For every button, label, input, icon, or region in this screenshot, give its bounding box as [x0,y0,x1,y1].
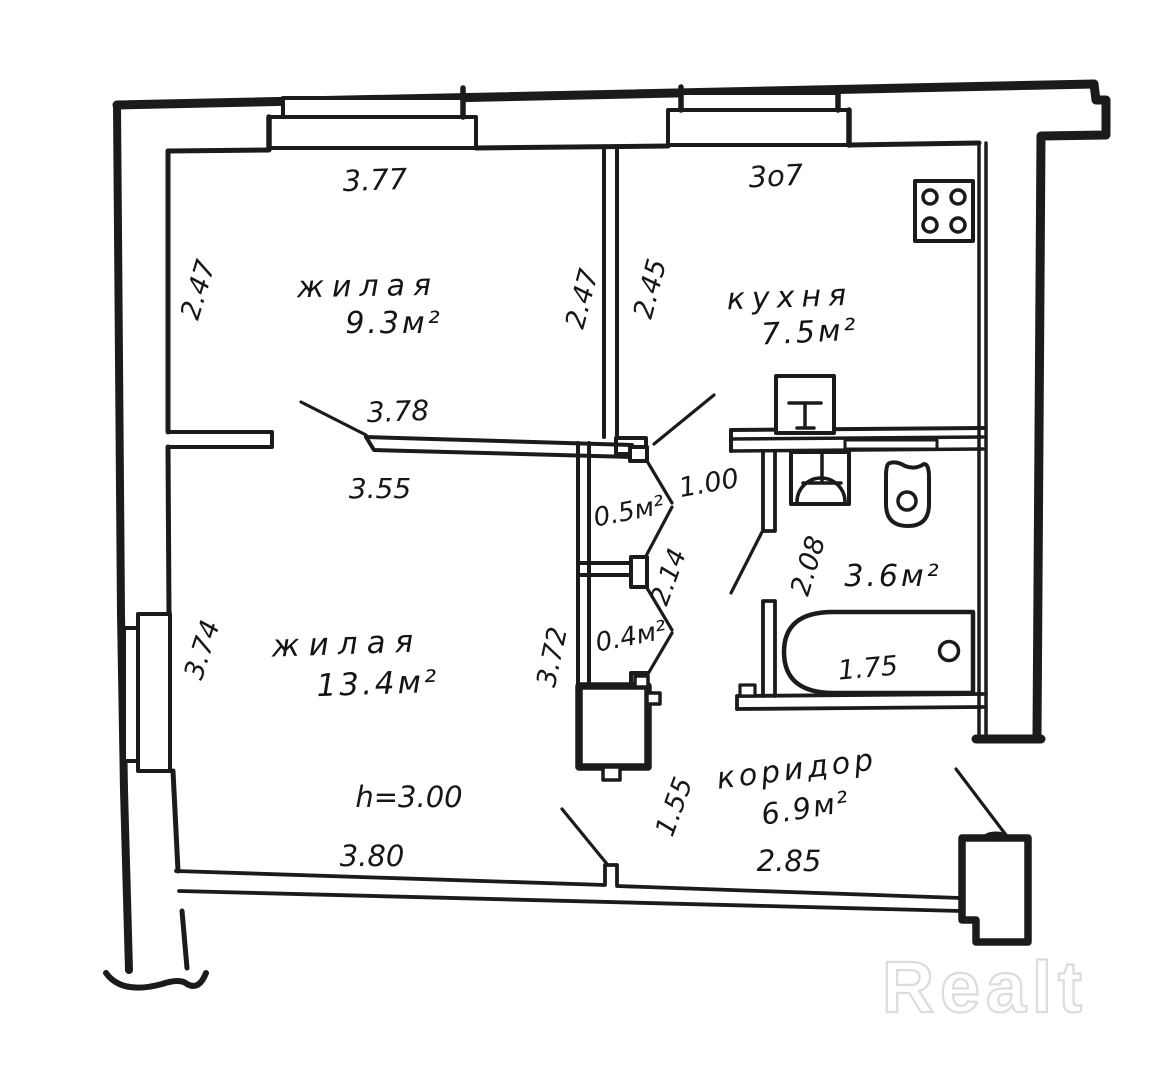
dim-top-kitchen: 3o7 [748,158,805,195]
kitchen-door-leaf [654,395,714,444]
stove-icon [915,181,973,241]
wall-kit-bath-slot [845,440,937,449]
bath-west-upper [763,452,775,531]
wall-kit-bath-top [731,428,983,430]
bath-south-2 [737,707,983,709]
room-kitchen-name: кухня [726,278,853,317]
dim-top-living: 3.77 [342,162,408,198]
wall-left-foot [106,973,206,988]
window-living1-icon [269,88,476,149]
window-living2-icon [124,614,170,771]
floor-plan-drawing: 3.77 3o7 2.47 2.47 2.45 жилая 9.3м² кухн… [0,0,1158,1071]
ceiling-height-note: h=3.00 [355,780,462,814]
closet-sep-jamb [631,557,647,587]
wall-left-inner-b [168,447,169,614]
wall-right-outer [1037,84,1106,735]
dim-living2-bottom: 3.80 [340,839,405,873]
kitchen-sink-icon [776,376,834,433]
dim-living1-right: 2.47 [560,266,606,332]
dim-corridor-opening: 1.55 [650,773,700,840]
closet-top-area: 0.5м² [591,490,667,533]
bath-west-lower [763,601,775,696]
wall-top-inner-a [168,150,269,151]
room-corridor-name: коридор [715,742,879,796]
room-living2-area: 13.4м² [316,664,440,704]
wall-left-inner-c [173,771,178,871]
wall-top-inner-c [849,143,979,145]
dim-bathtub-length: 1.75 [837,650,900,686]
watermark-realt: Realt [882,948,1088,1028]
room-corridor-area: 6.9м² [759,784,853,832]
wall-left-inner-d [182,911,187,968]
washbasin-icon [791,452,849,504]
closet-bottom-area: 0.4м² [593,615,669,658]
wall-top-inner-b [476,146,668,148]
bathroom-door-leaf [731,532,762,593]
wall-top-outer [117,84,1094,105]
room-living2-name: жилая [270,623,423,664]
toilet-icon [886,462,929,526]
room-kitchen-area: 7.5м² [760,312,859,352]
dim-wall-378: 3.78 [366,394,429,429]
bath-south-jamb [740,685,755,696]
vent-shaft-icon [579,676,660,780]
dim-living2-left: 3.74 [178,616,226,683]
window-kitchen-icon [668,87,849,145]
wall-h1-long-top [366,437,632,445]
dim-kitchen-left: 2.45 [628,256,674,322]
dim-living1-left: 2.47 [175,257,222,324]
living1-door-leaf [301,402,366,435]
dim-closet-door: 1.00 [677,463,742,504]
room-living1-area: 9.3м² [345,306,442,341]
entry-door-block-icon [956,769,1028,942]
dim-bathroom-width: 2.08 [785,533,832,600]
closet-top-jamb [630,447,647,461]
dim-closet-column: 2.14 [645,545,693,610]
dim-living2-right: 3.72 [531,624,574,689]
wall-h1-stub [168,432,272,447]
dim-living2-top: 3.55 [349,472,411,505]
entry-door-leaf [956,769,1006,835]
floor-plan-page: 3.77 3o7 2.47 2.47 2.45 жилая 9.3м² кухн… [0,0,1158,1071]
wall-left-outer [117,105,129,970]
room-living1-name: жилая [296,268,440,305]
interior-walls [168,150,983,911]
dim-corridor-bottom: 2.85 [757,844,822,878]
living2-door-leaf [562,809,607,864]
bathroom-area: 3.6м² [844,559,941,594]
